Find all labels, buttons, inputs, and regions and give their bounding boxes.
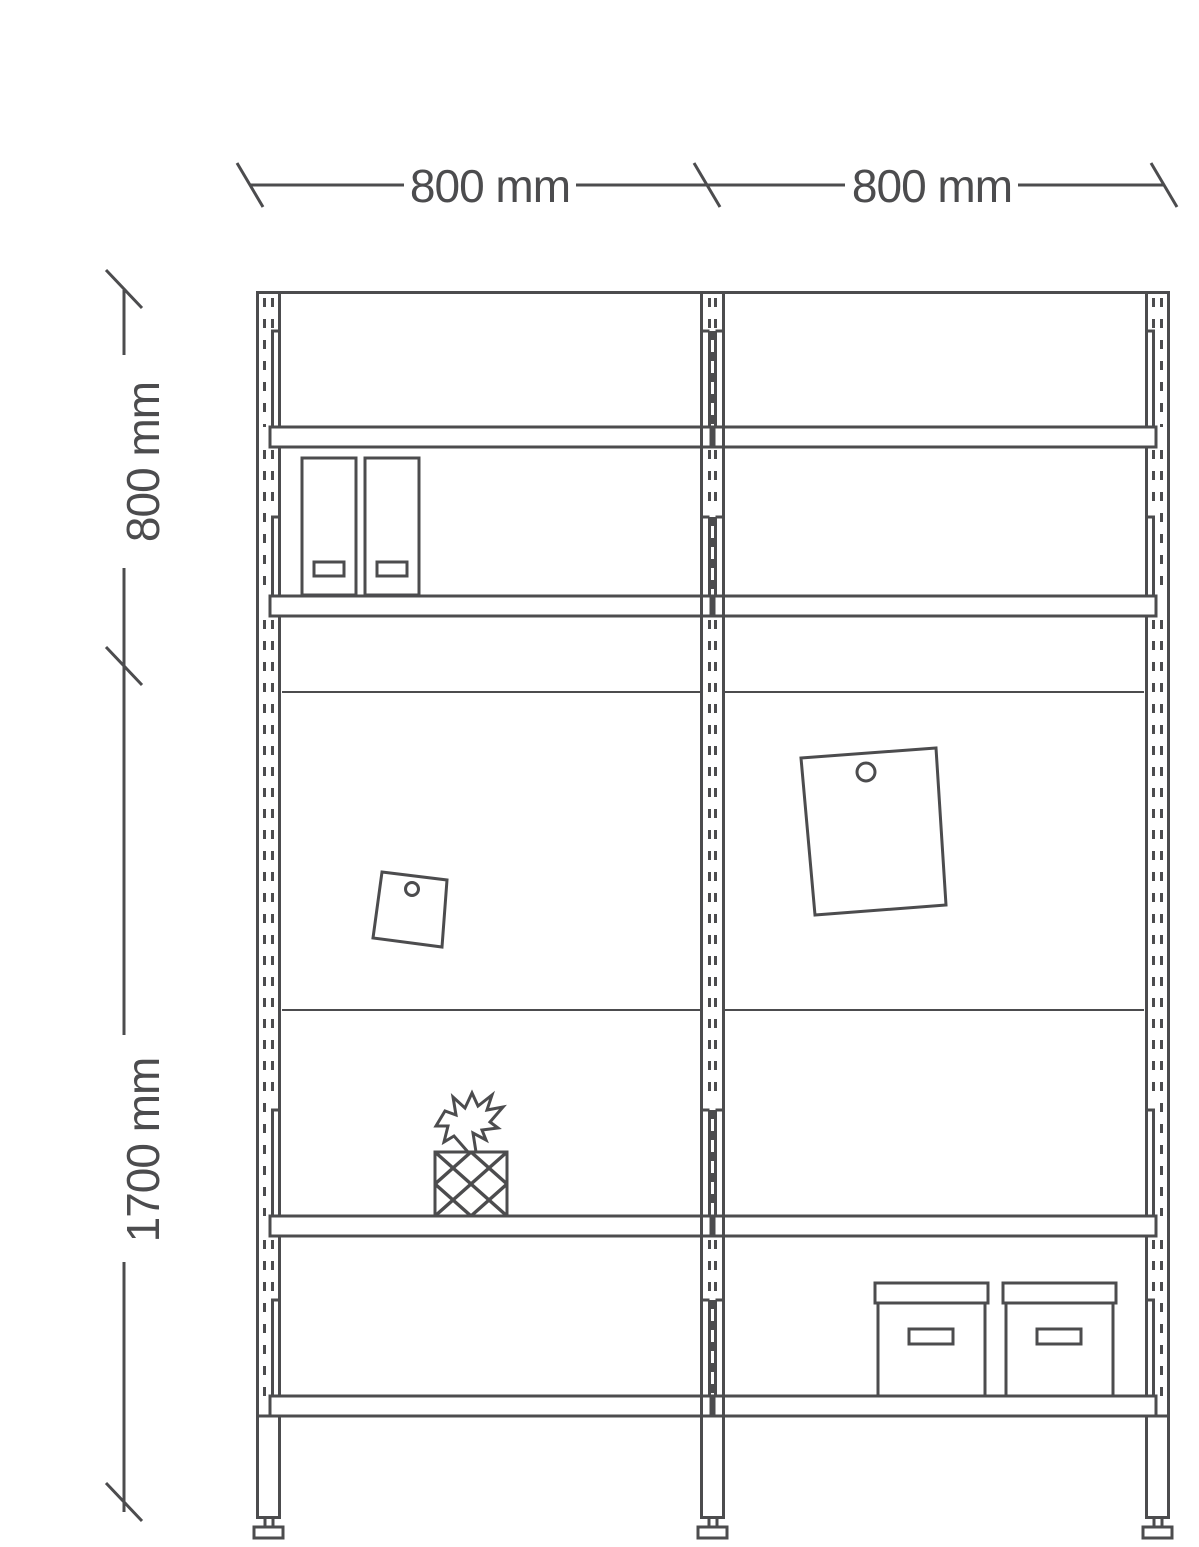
pinned-paper-icon: [801, 748, 946, 915]
pinned-note-icon: [373, 872, 447, 947]
box-lid: [875, 1283, 988, 1303]
shelf-board: [714, 427, 1156, 447]
left-post: [254, 291, 283, 1538]
box-body: [878, 1303, 985, 1396]
binder-icon: [365, 458, 419, 595]
bottom-board: [714, 1396, 1156, 1416]
dimension-label-side-total: 1700 mm: [117, 1058, 169, 1243]
right-post: [1143, 291, 1172, 1538]
dimension-label-side-upper: 800 mm: [117, 382, 169, 542]
diagram-canvas: 800 mm 800 mm 800 mm 1700 mm: [0, 0, 1199, 1547]
box-label-slot: [1037, 1329, 1081, 1344]
shelving-dimension-diagram: 800 mm 800 mm 800 mm 1700 mm: [0, 0, 1199, 1547]
binder-icon: [302, 458, 356, 595]
shelf-board: [714, 596, 1156, 616]
shelf-board: [714, 1216, 1156, 1236]
dimension-label-top-right: 800 mm: [852, 160, 1012, 212]
box-lid: [1003, 1283, 1116, 1303]
box-body: [1006, 1303, 1113, 1396]
leg-foot: [254, 1518, 283, 1539]
storage-box-icon: [1003, 1283, 1116, 1396]
dimension-label-top-left: 800 mm: [410, 160, 570, 212]
middle-post: [698, 291, 727, 1538]
pinboard-panel: [282, 692, 1144, 1010]
storage-box-icon: [875, 1283, 988, 1396]
side-dimension: 800 mm 1700 mm: [106, 270, 169, 1521]
top-dimension: 800 mm 800 mm: [237, 160, 1177, 212]
shelf-board: [270, 427, 711, 447]
pineapple-icon: [435, 1093, 507, 1216]
box-label-slot: [909, 1329, 953, 1344]
shelf-board: [270, 596, 711, 616]
pineapple-crown: [436, 1093, 503, 1152]
shelf-board: [270, 1216, 711, 1236]
leg-foot: [698, 1518, 727, 1539]
bottom-board: [270, 1396, 711, 1416]
leg-foot: [1143, 1518, 1172, 1539]
